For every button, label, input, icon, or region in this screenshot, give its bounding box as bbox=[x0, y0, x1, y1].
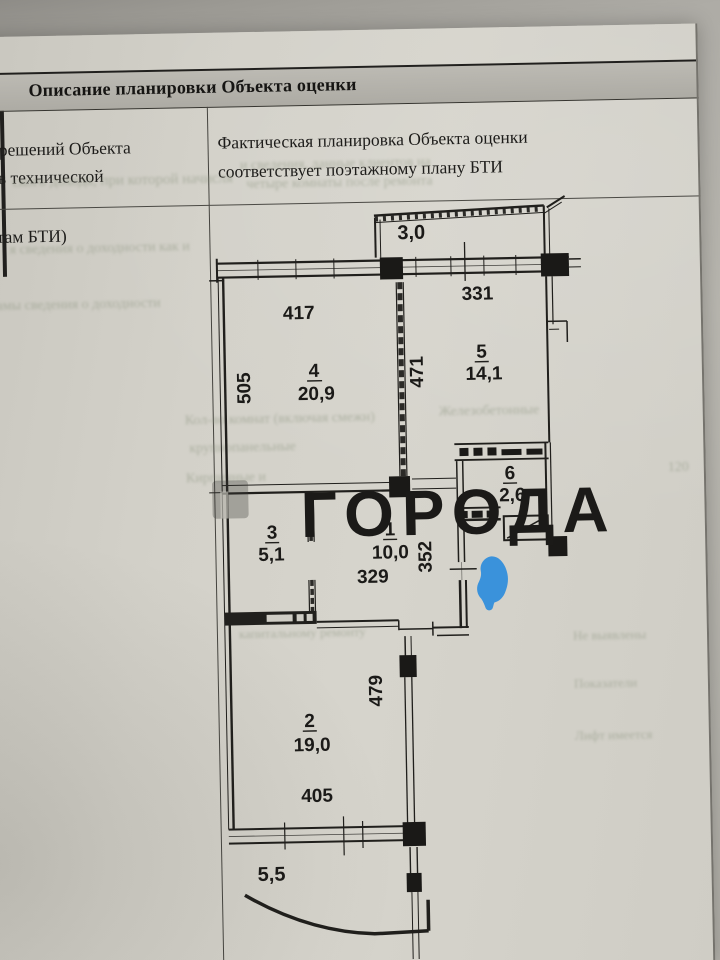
dim-471-label: 471 bbox=[407, 355, 429, 388]
column-block bbox=[399, 655, 416, 677]
plan-labels: 3,0 417 331 505 4 20,9 471 5 14,1 6 2,6 … bbox=[231, 220, 533, 886]
table-header-row: Описание планировки Объекта оценки bbox=[0, 59, 699, 112]
bleedthrough-text: амы сведения о доходности bbox=[0, 296, 161, 315]
dim-505-label: 505 bbox=[234, 372, 256, 405]
dim-479-label: 479 bbox=[366, 675, 388, 707]
balcony-top-area-label: 3,0 bbox=[397, 222, 425, 245]
room-4-number: 4 bbox=[308, 361, 319, 382]
column-block bbox=[380, 257, 403, 279]
watermark-text: ГОРОДА bbox=[300, 473, 617, 551]
floor-plan: ГОРОДА 3,0 417 331 505 4 20,9 471 5 14,1… bbox=[184, 181, 720, 960]
column-block bbox=[407, 873, 422, 892]
vent-slot bbox=[267, 614, 293, 621]
outer-left-wall bbox=[223, 278, 234, 830]
dim-329-label: 329 bbox=[357, 566, 389, 588]
room-6-area: 2,6 bbox=[499, 485, 526, 507]
page-title: Описание планировки Объекта оценки bbox=[28, 74, 357, 101]
room-1-number: 1 bbox=[384, 519, 395, 540]
left-cell-text-line1: х решений Объекта bbox=[0, 137, 131, 161]
right-cell-text-line1: Фактическая планировка Объекта оценки bbox=[217, 127, 527, 154]
plan-walls bbox=[204, 196, 595, 960]
bleedthrough-text: ского дохода, при которой начисля bbox=[12, 170, 233, 191]
room-3-number: 3 bbox=[267, 523, 278, 544]
photo-background: Описание планировки Объекта оценки х реш… bbox=[0, 0, 720, 960]
outer-right-wall bbox=[546, 276, 569, 442]
document-paper: Описание планировки Объекта оценки х реш… bbox=[0, 23, 715, 960]
room-6-number: 6 bbox=[504, 463, 515, 484]
wall-room1-bottom bbox=[317, 619, 469, 638]
column-block bbox=[541, 253, 569, 277]
window-wall-bottom bbox=[228, 815, 420, 858]
outer-left-wall-inner bbox=[218, 278, 229, 830]
column-block bbox=[403, 822, 426, 846]
room-2-number: 2 bbox=[304, 711, 315, 732]
watermark-logo-slit bbox=[220, 492, 229, 519]
room-5-number: 5 bbox=[476, 342, 487, 363]
balcony-bottom-area-label: 5,5 bbox=[257, 864, 285, 887]
watermark-logo bbox=[212, 480, 249, 519]
room-5-area: 14,1 bbox=[465, 363, 503, 385]
dim-405-label: 405 bbox=[301, 786, 334, 808]
room-1-area: 10,0 bbox=[372, 542, 409, 564]
room-2-area: 19,0 bbox=[293, 735, 330, 757]
room-4-area: 20,9 bbox=[298, 383, 335, 405]
wall-rooms-4-5 bbox=[396, 282, 407, 476]
dim-352-label: 352 bbox=[415, 541, 437, 573]
blue-marker bbox=[476, 556, 508, 610]
bleedthrough-layer: ского дохода, при которой начисляи сведе… bbox=[0, 23, 697, 37]
vent-slot bbox=[307, 614, 313, 621]
room-3-area: 5,1 bbox=[258, 544, 285, 566]
dim-331-label: 331 bbox=[461, 283, 494, 305]
bleedthrough-text: я сведения о доходности как и bbox=[9, 239, 189, 258]
dim-417-label: 417 bbox=[283, 303, 315, 325]
vent-slot bbox=[297, 614, 304, 621]
